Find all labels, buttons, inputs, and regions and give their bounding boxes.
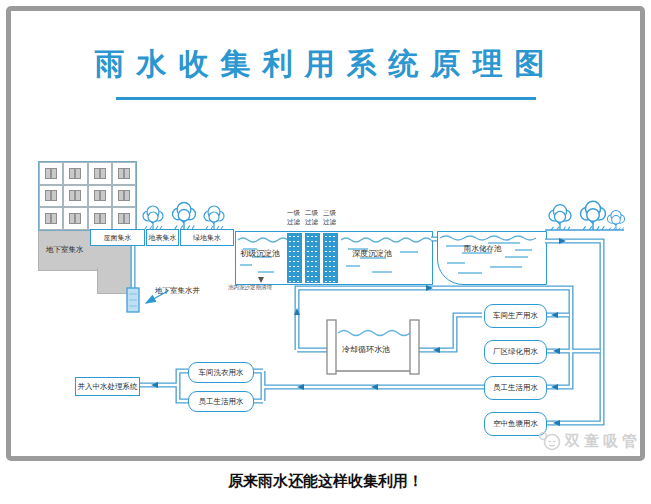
filter-column-3 — [323, 233, 338, 283]
building — [38, 161, 137, 231]
green-collect-box: 绿地集水 — [180, 229, 234, 246]
water-surfaces — [238, 236, 536, 242]
building-window — [63, 185, 87, 208]
building-window — [112, 162, 136, 185]
filter-3-label: 三级过滤 — [321, 209, 338, 227]
surface-collect-box: 地表集水 — [146, 229, 179, 246]
building-window — [112, 185, 136, 208]
roof-collect-box: 屋面集水 — [90, 229, 145, 246]
building-window — [88, 162, 112, 185]
primary-tank-label: 初级沉淀池 — [240, 248, 280, 259]
cooling-pool-label: 冷却循环水池 — [342, 344, 390, 355]
filter-column-2 — [305, 233, 320, 283]
storage-pool-label: 雨水储存池 — [464, 244, 502, 254]
article-page: 雨水收集利用系统原理图 地下室集水 屋面集水 地表集水 绿地集水 地下室集水井 … — [0, 0, 651, 504]
watermark-face-icon — [538, 431, 562, 451]
watermark: 双童吸管 — [538, 431, 641, 451]
use-box-workshop-production: 车间生产用水 — [484, 304, 547, 328]
discharge-box: 并入中水处理系统 — [75, 377, 140, 396]
use-box-staff-living-left: 员工生活用水 — [188, 391, 254, 412]
building-window — [39, 185, 63, 208]
building-window — [63, 162, 87, 185]
building-window — [88, 185, 112, 208]
building-window — [88, 207, 112, 230]
building-window — [39, 162, 63, 185]
watermark-text: 双童吸管 — [565, 432, 641, 451]
filter-1-label: 一级过滤 — [285, 209, 302, 227]
filter-column-1 — [287, 233, 302, 283]
building-window — [112, 207, 136, 230]
use-box-staff-living: 员工生活用水 — [484, 376, 547, 400]
use-box-laundry: 车间洗衣用水 — [188, 362, 254, 383]
note-arrow-icon — [258, 277, 264, 283]
basement-collect-label: 地下室集水 — [46, 245, 84, 255]
building-window — [63, 207, 87, 230]
deep-tank-label: 深度沉淀池 — [352, 248, 392, 259]
trees — [143, 201, 625, 230]
well-label: 地下室集水井 — [155, 286, 200, 296]
building-window — [39, 207, 63, 230]
filter-2-label: 二级过滤 — [303, 209, 320, 227]
use-box-greening: 厂区绿化用水 — [484, 340, 547, 364]
sediment-cleaning-note: 池内泥沙定期清理 — [228, 284, 272, 291]
